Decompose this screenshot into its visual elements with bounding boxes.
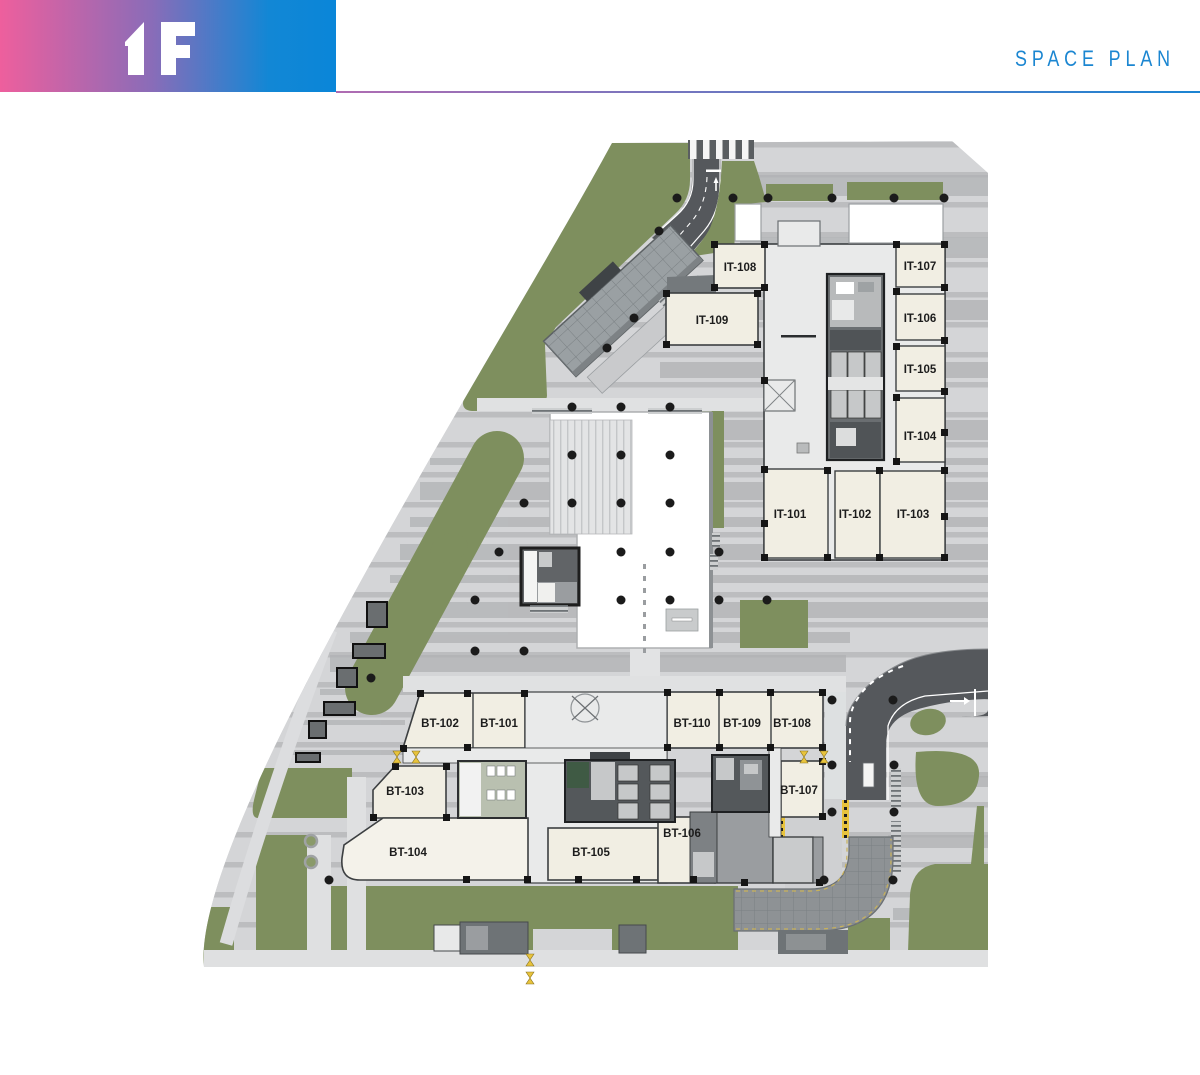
svg-text:BT-109: BT-109 <box>723 718 761 730</box>
svg-text:IT-103: IT-103 <box>897 509 930 521</box>
svg-text:BT-103: BT-103 <box>386 786 424 798</box>
svg-text:IT-101: IT-101 <box>774 509 807 521</box>
svg-text:IT-108: IT-108 <box>724 262 757 274</box>
svg-text:IT-102: IT-102 <box>839 509 872 521</box>
svg-text:BT-110: BT-110 <box>673 718 710 730</box>
svg-text:BT-102: BT-102 <box>421 718 459 730</box>
svg-text:IT-104: IT-104 <box>904 431 937 443</box>
svg-text:IT-107: IT-107 <box>904 261 937 273</box>
svg-text:BT-106: BT-106 <box>663 828 701 840</box>
svg-text:IT-106: IT-106 <box>904 313 937 325</box>
svg-text:IT-109: IT-109 <box>696 315 729 327</box>
svg-text:BT-107: BT-107 <box>780 785 818 797</box>
svg-text:BT-108: BT-108 <box>773 718 811 730</box>
svg-text:BT-104: BT-104 <box>389 847 427 859</box>
svg-text:SPACE PLAN: SPACE PLAN <box>1015 46 1175 71</box>
svg-text:BT-105: BT-105 <box>572 847 610 859</box>
svg-text:IT-105: IT-105 <box>904 364 937 376</box>
svg-text:BT-101: BT-101 <box>480 718 518 730</box>
